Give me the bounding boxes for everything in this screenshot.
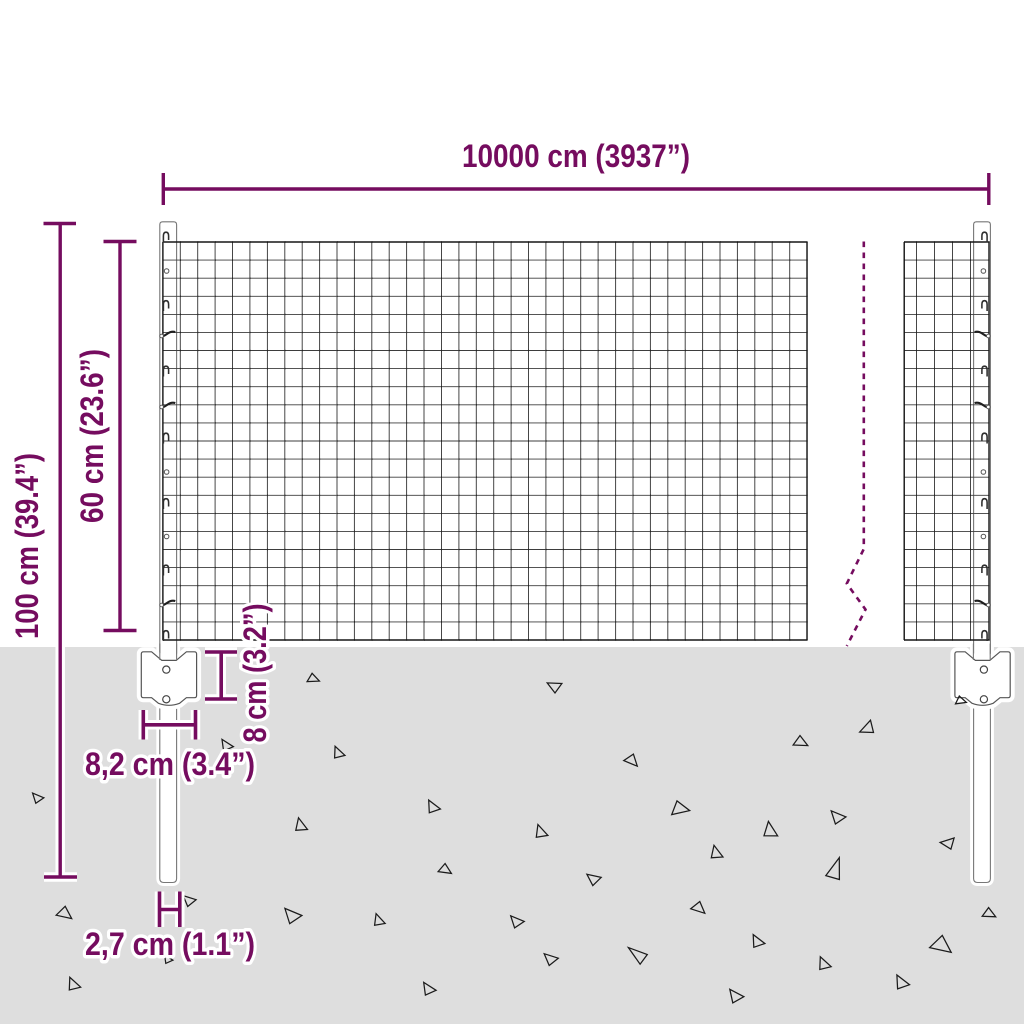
svg-text:2,7 cm (1.1”): 2,7 cm (1.1”) <box>85 926 255 962</box>
svg-text:8,2 cm (3.4”): 8,2 cm (3.4”) <box>85 746 255 782</box>
svg-text:10000 cm (3937”): 10000 cm (3937”) <box>462 138 690 174</box>
svg-text:100 cm (39.4”): 100 cm (39.4”) <box>9 453 45 639</box>
svg-text:60 cm (23.6”): 60 cm (23.6”) <box>74 349 110 523</box>
svg-text:8 cm (3.2”): 8 cm (3.2”) <box>237 604 273 743</box>
